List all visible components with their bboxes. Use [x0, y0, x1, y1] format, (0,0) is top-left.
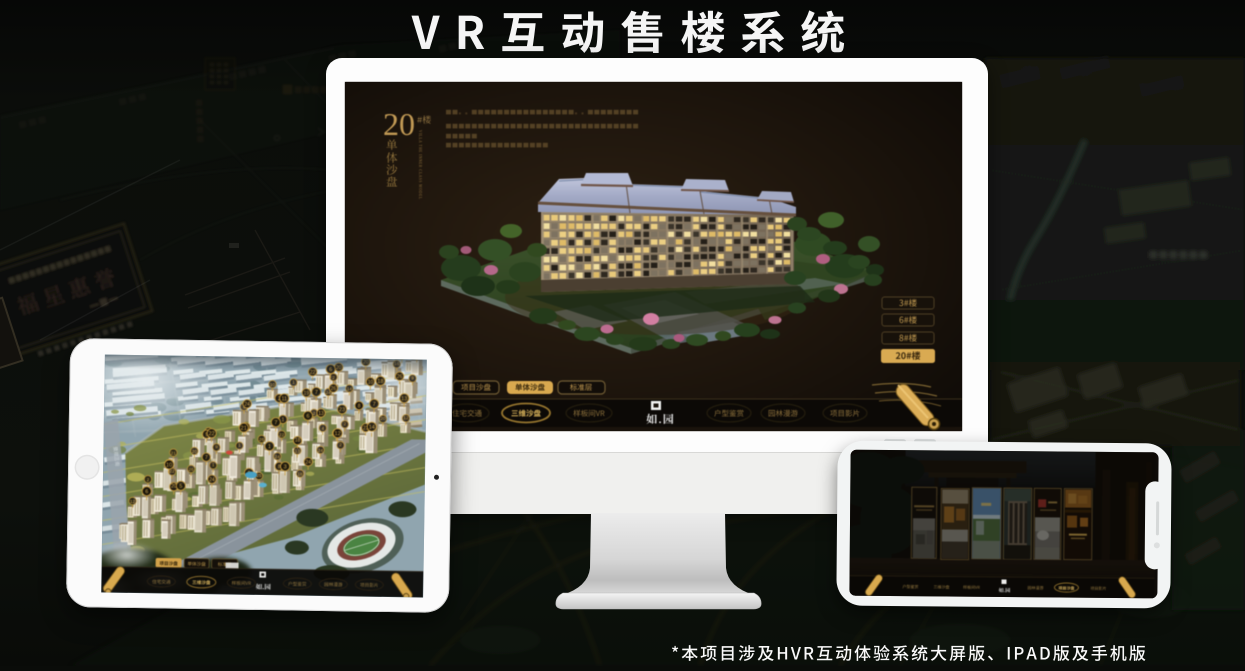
svg-text:13: 13: [401, 396, 407, 402]
svg-text:26: 26: [397, 374, 403, 380]
svg-text:10: 10: [368, 380, 374, 386]
svg-text:10: 10: [270, 382, 276, 387]
svg-text:20: 20: [192, 449, 198, 454]
svg-text:10: 10: [414, 355, 420, 358]
svg-text:VILLA THE INNER CLASS MODEL: VILLA THE INNER CLASS MODEL: [418, 130, 422, 200]
svg-text:26: 26: [188, 467, 194, 472]
svg-text:24: 24: [209, 477, 215, 483]
svg-text:13: 13: [295, 449, 301, 454]
svg-text:14: 14: [347, 386, 353, 391]
svg-text:18: 18: [297, 472, 303, 477]
svg-text:18: 18: [377, 379, 383, 385]
svg-text:26: 26: [259, 437, 265, 442]
svg-text:24: 24: [275, 454, 281, 459]
svg-text:8: 8: [358, 404, 361, 410]
svg-text:11: 11: [281, 396, 287, 402]
svg-text:6: 6: [306, 414, 309, 420]
svg-text:19: 19: [303, 391, 309, 397]
svg-text:22: 22: [279, 432, 285, 437]
svg-text:6: 6: [400, 355, 403, 360]
svg-text:3: 3: [284, 464, 287, 470]
svg-text:14: 14: [369, 425, 375, 431]
svg-text:18: 18: [295, 438, 301, 444]
svg-text:6: 6: [145, 489, 148, 495]
svg-text:21: 21: [241, 426, 247, 432]
svg-text:5: 5: [179, 484, 182, 490]
svg-text:24: 24: [305, 460, 311, 466]
svg-text:7: 7: [373, 402, 376, 408]
svg-text:7: 7: [205, 455, 208, 461]
svg-text:1: 1: [268, 444, 271, 450]
svg-text:13: 13: [318, 411, 324, 417]
svg-text:24: 24: [318, 448, 324, 453]
svg-text:23: 23: [339, 407, 345, 413]
svg-text:26: 26: [331, 386, 337, 392]
svg-text:7: 7: [274, 420, 277, 426]
svg-text:10: 10: [166, 463, 172, 469]
svg-text:12: 12: [130, 499, 136, 504]
svg-text:12: 12: [403, 415, 409, 420]
svg-text:12: 12: [335, 431, 341, 437]
svg-text:21: 21: [171, 451, 177, 456]
svg-text:22: 22: [209, 431, 215, 437]
svg-text:20: 20: [383, 106, 415, 142]
svg-text:25: 25: [256, 473, 262, 478]
svg-text:7: 7: [315, 390, 318, 396]
svg-text:20: 20: [380, 416, 386, 421]
svg-text:24: 24: [244, 402, 250, 408]
svg-text:1: 1: [281, 417, 284, 423]
